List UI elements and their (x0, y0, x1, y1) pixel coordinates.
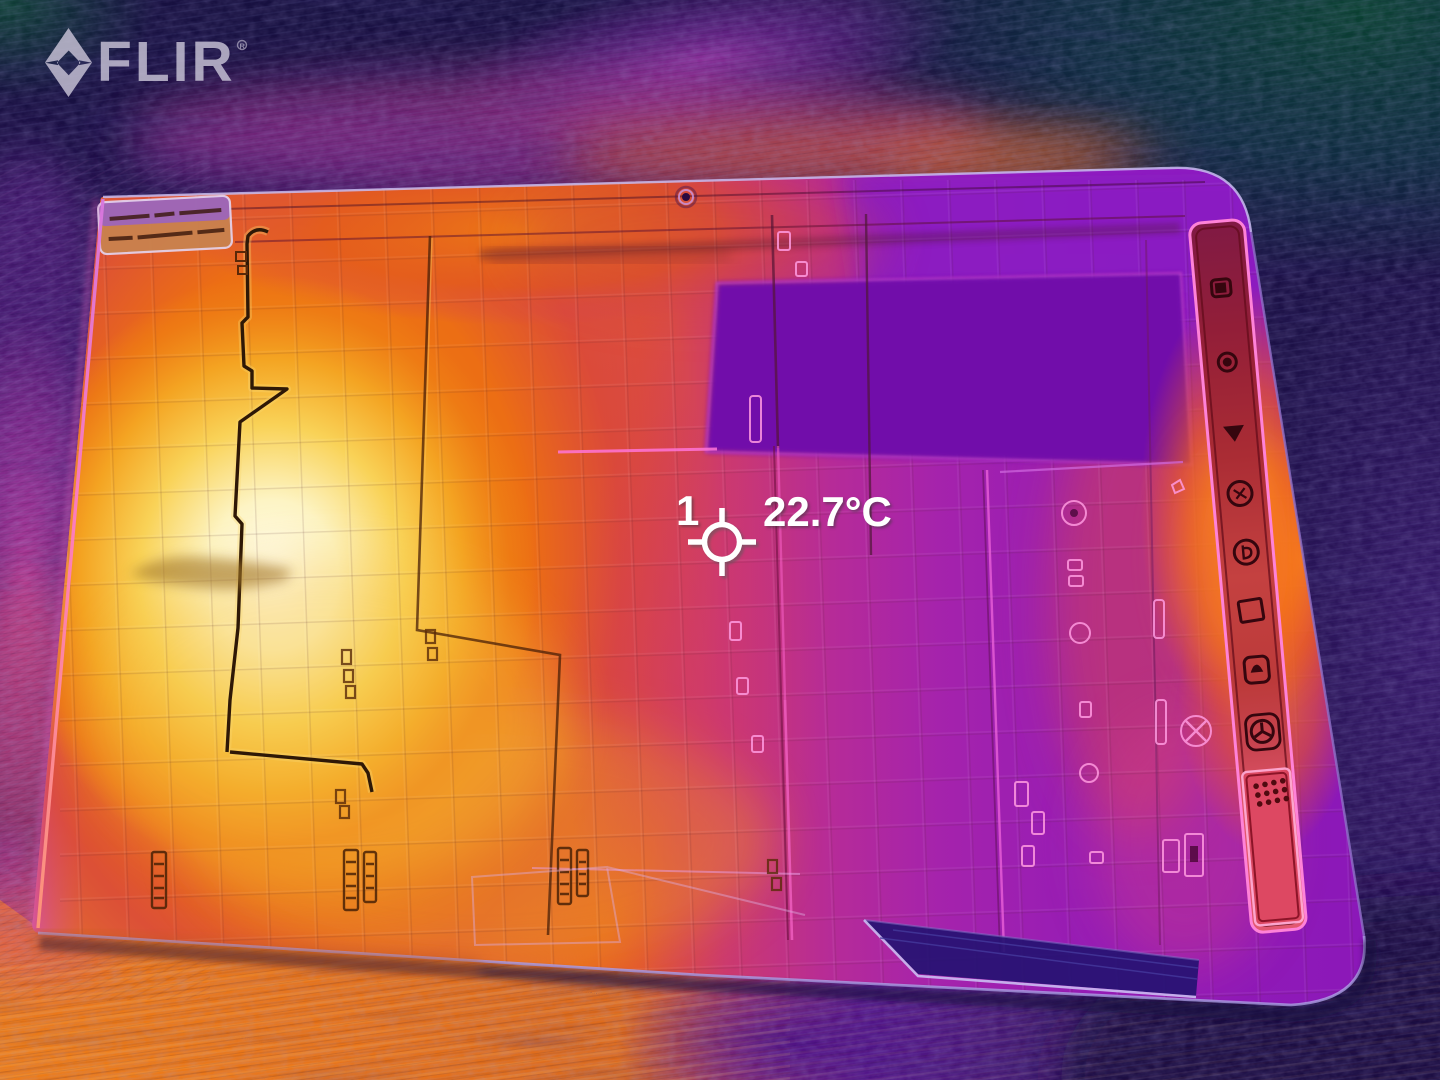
svg-text:FLIR: FLIR (97, 30, 236, 94)
svg-text:1: 1 (676, 487, 699, 534)
svg-text:R: R (240, 42, 246, 51)
svg-text:22.7°C: 22.7°C (763, 488, 892, 535)
